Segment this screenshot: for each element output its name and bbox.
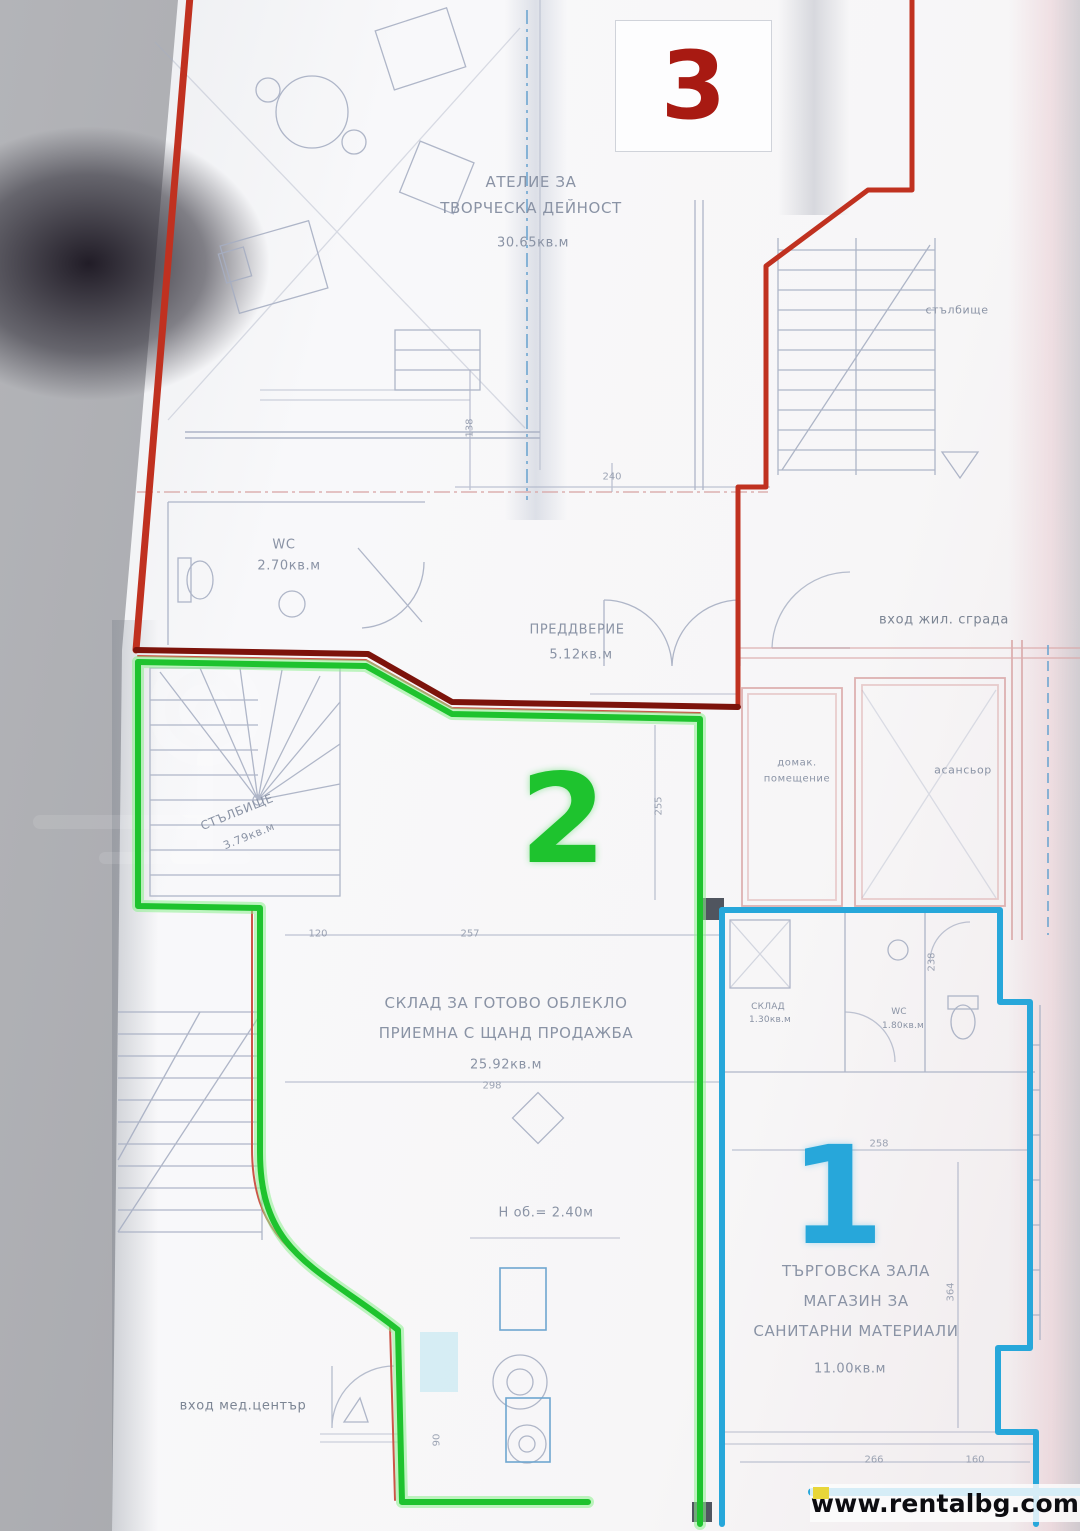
wc1-area: 1.80кв.м [882, 1021, 924, 1031]
dimension-label: 298 [482, 1081, 501, 1092]
unit1-number: 1 [772, 1122, 902, 1272]
vestibule-area: 5.12кв.м [549, 648, 612, 663]
shop-area: 11.00кв.м [814, 1362, 886, 1377]
dashed-reference-lines [420, 10, 1048, 1462]
watermark-chip [813, 1487, 829, 1499]
unit3-number: 3 [661, 32, 726, 141]
atelier-label: АТЕЛИЕ ЗА [486, 173, 577, 191]
staircase-top-label: стълбище [925, 304, 988, 317]
floorplan-photo: АТЕЛИЕ ЗА ТВОРЧЕСКА ДЕЙНОСТ 30.65кв.м WC… [0, 0, 1080, 1531]
stair-bottom-left [118, 1012, 262, 1232]
dimension-label: 120 [308, 929, 327, 940]
watermark-url: www.rentalbg.com [811, 1489, 1079, 1518]
watermark-bar: www.rentalbg.com [810, 1484, 1080, 1522]
utility-room-label: помещение [764, 774, 831, 785]
storage2-label: ПРИЕМНА С ЩАНД ПРОДАЖБА [379, 1024, 634, 1042]
unit3-number-box: 3 [615, 20, 772, 152]
unit2-number: 2 [498, 752, 628, 887]
shop-label: МАГАЗИН ЗА [803, 1292, 908, 1310]
dimension-label: 138 [465, 418, 476, 437]
winder-stair [150, 668, 340, 896]
stair-top-right [778, 238, 978, 478]
utility-room-label: домак. [777, 758, 817, 769]
dimension-label: 255 [654, 796, 665, 815]
wc1-label: WC [891, 1007, 907, 1017]
medical-entrance-label: вход мед.център [180, 1399, 307, 1414]
atelier-area: 30.65кв.м [497, 236, 569, 251]
dimension-label: 238 [927, 952, 938, 971]
height-note: Н об.= 2.40м [499, 1206, 594, 1221]
residential-entrance-label: вход жил. сграда [879, 613, 1009, 628]
unit3-outline [136, 0, 912, 713]
atelier-label: ТВОРЧЕСКА ДЕЙНОСТ [440, 199, 622, 217]
shop-label: САНИТАРНИ МАТЕРИАЛИ [753, 1322, 958, 1340]
storage1-area: 1.30кв.м [749, 1015, 791, 1025]
dimension-label: 240 [602, 472, 621, 483]
vestibule-label: ПРЕДДВЕРИЕ [529, 623, 624, 638]
dimension-label: 257 [460, 929, 479, 940]
elevator-label: асансьор [934, 764, 992, 777]
dimension-label: 266 [864, 1455, 883, 1466]
dimension-label: 160 [965, 1455, 984, 1466]
storage2-area: 25.92кв.м [470, 1058, 542, 1073]
storage2-label: СКЛАД ЗА ГОТОВО ОБЛЕКЛО [385, 994, 628, 1012]
wc3-label: WC [272, 538, 295, 553]
storage1-label: СКЛАД [751, 1002, 785, 1012]
wc3-area: 2.70кв.м [257, 559, 320, 574]
dimension-label: 90 [432, 1434, 443, 1447]
dimension-label: 364 [946, 1282, 957, 1301]
